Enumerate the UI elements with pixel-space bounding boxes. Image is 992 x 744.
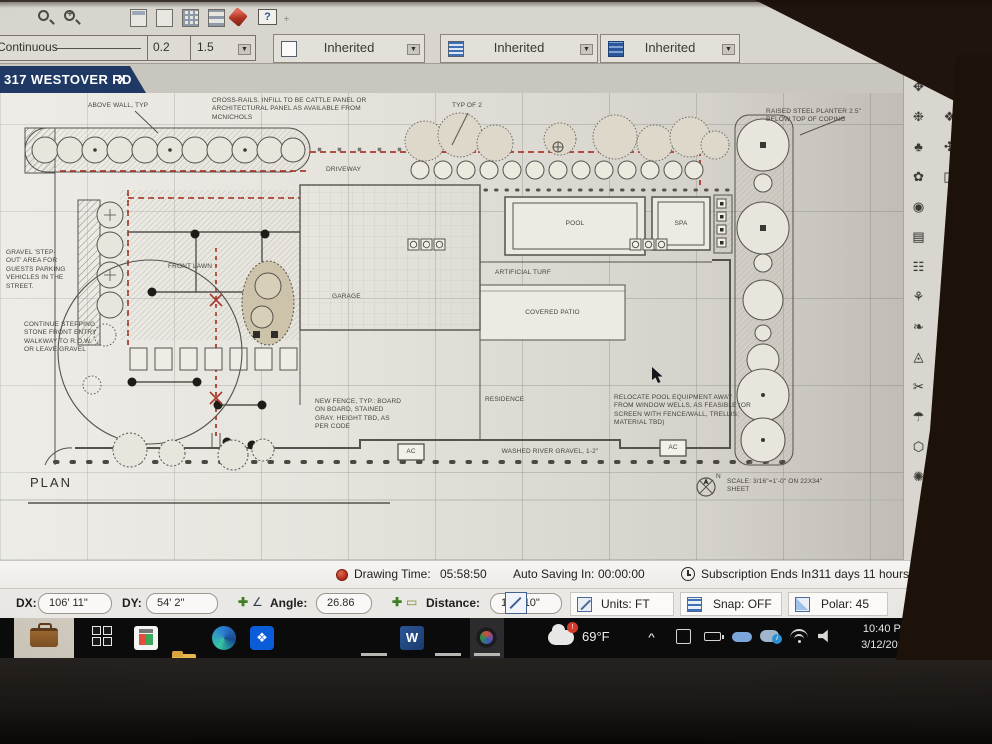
palette-tool-icon[interactable]: ▤ (908, 226, 930, 248)
palette-tool-icon[interactable]: ✜ (939, 466, 961, 488)
plan-note: CONTINUE STEPPING STONE FRONT ENTRY WALK… (24, 321, 98, 355)
drawing-canvas[interactable]: ABOVE WALL, TYP CROSS-RAILS. INFILL TO B… (0, 93, 905, 560)
wifi-icon[interactable] (790, 629, 808, 643)
plan-note: RELOCATE POOL EQUIPMENT AWAY FROM WINDOW… (614, 394, 752, 428)
layer-inherit-select[interactable]: Inherited ▼ (600, 34, 740, 63)
dy-label: DY: (122, 596, 142, 610)
palette-tool-icon[interactable]: ⬡ (908, 436, 930, 458)
scale-note: SCALE: 3/16"=1'-0" ON 22X34" SHEET (727, 478, 835, 495)
palette-tool-icon[interactable]: ✻ (939, 406, 961, 428)
palette-tool-icon[interactable]: ❉ (908, 106, 930, 128)
autosave-value: 00:00:00 (598, 567, 645, 581)
palette-tool-icon[interactable]: ✦ (939, 226, 961, 248)
plan-note: RAISED STEEL PLANTER 2.5" BELOW TOP OF C… (766, 108, 884, 125)
weather-cloud-icon: ! (548, 630, 574, 645)
menubar: ? ÷ (0, 0, 905, 32)
plan-note: TYP OF 2 (452, 102, 482, 110)
start-button[interactable] (92, 626, 116, 650)
cloud-sync-icon[interactable] (760, 630, 779, 642)
palette-tool-icon[interactable]: ⚘ (908, 286, 930, 308)
palette-tool-icon[interactable]: ▦ (939, 286, 961, 308)
laptop-photo: ? ÷ Continuous 0.2 1.5 ▼ Inherited ▼ Inh… (0, 0, 992, 744)
tab-title: 317 WESTOVER RD (4, 72, 132, 87)
tile-windows-icon[interactable] (130, 9, 147, 27)
palette-tool-icon[interactable]: ▥ (939, 76, 961, 98)
autosave-label: Auto Saving In: (513, 567, 594, 581)
drawing-tab[interactable]: 317 WESTOVER RD X (0, 66, 146, 93)
status-bar: Drawing Time: 05:58:50 Auto Saving In: 0… (0, 560, 992, 588)
linescale-value: 1.5 (197, 40, 214, 54)
layer-inherit-value: Inherited (645, 40, 696, 55)
linetype-sample (55, 48, 141, 49)
plan-label: AC (660, 444, 686, 452)
linescale-select[interactable]: 1.5 ▼ (190, 35, 256, 61)
palette-tool-icon[interactable]: ◉ (908, 196, 930, 218)
plan-label: ARTIFICIAL TURF (495, 269, 551, 277)
subscription-value: 311 days 11 hours 47 mins (812, 567, 954, 581)
polar-value: Polar: 45 (821, 597, 869, 611)
measure-tool-icon[interactable] (505, 592, 527, 614)
design-app-tile[interactable] (470, 618, 504, 658)
temperature-value: 69°F (582, 629, 610, 644)
units-icon (577, 597, 592, 612)
palette-tool-icon[interactable]: ♣ (908, 136, 930, 158)
coordinate-bar: DX: 106' 11" DY: 54' 2" ✚ ∠ Angle: 26.86… (0, 588, 992, 618)
snap-toggle[interactable]: Snap: OFF (680, 592, 782, 616)
palette-tool-icon[interactable]: ◫ (939, 166, 961, 188)
briefcase-icon (30, 628, 58, 647)
battery-icon[interactable] (704, 632, 721, 641)
laptop-bezel: hp (0, 658, 992, 744)
onedrive-icon[interactable] (732, 632, 752, 642)
linetype-value: Continuous (0, 40, 58, 54)
plan-label: POOL (505, 220, 645, 228)
tool-palette: ✥❉♣✿◉▤☷⚘❧◬✂☂⬡✺▥❖✣◫♠✦☘▦◔✸⬚✻▧✜ (903, 72, 965, 492)
zoom-out-icon[interactable] (38, 10, 49, 21)
palette-tool-icon[interactable]: ✥ (908, 76, 930, 98)
store-icon[interactable] (134, 626, 158, 650)
polar-icon (795, 597, 810, 612)
plan-note: CROSS-RAILS. INFILL TO BE CATTLE PANEL O… (212, 97, 390, 122)
distance-label: Distance: (426, 596, 480, 610)
plan-label: COVERED PATIO (480, 309, 625, 317)
plan-label: GARAGE (332, 293, 361, 301)
notification-count: 1 (946, 630, 952, 641)
palette-tool-icon[interactable]: ⬚ (939, 376, 961, 398)
zoom-in-icon[interactable] (64, 10, 75, 21)
taskbar-clock[interactable]: 10:40 PM 3/12/2024 (842, 622, 910, 654)
palette-tool-icon[interactable]: ✿ (908, 166, 930, 188)
units-toggle[interactable]: Units: FT (570, 592, 674, 616)
active-app-tile[interactable] (14, 618, 74, 658)
layout-rows-icon[interactable] (208, 9, 225, 27)
dx-label: DX: (16, 596, 37, 610)
plan-note: GRAVEL 'STEP-OUT' AREA FOR GUESTS PARKIN… (6, 249, 70, 291)
edge-browser-icon[interactable] (212, 626, 236, 650)
chevron-down-icon[interactable]: ▼ (238, 44, 251, 55)
polar-toggle[interactable]: Polar: 45 (788, 592, 888, 616)
plan-label: RESIDENCE (485, 396, 524, 404)
time-value: 10:40 PM (842, 622, 910, 638)
snap-value: Snap: OFF (713, 597, 772, 611)
lineweight-value: 0.2 (153, 40, 170, 54)
hatch-inherit-value: Inherited (494, 40, 545, 55)
palette-tool-icon[interactable]: ❖ (939, 106, 961, 128)
weather-widget[interactable]: ! 69°F (548, 626, 644, 652)
snap-grid-icon (687, 597, 702, 612)
palette-tool-icon[interactable]: ✣ (939, 136, 961, 158)
device-icon[interactable] (676, 629, 691, 644)
clock-icon (681, 567, 695, 581)
dy-field[interactable]: 54' 2" (146, 593, 218, 614)
dx-field[interactable]: 106' 11" (38, 593, 112, 614)
grid-view-icon[interactable] (182, 9, 199, 27)
properties-toolbar: Continuous 0.2 1.5 ▼ Inherited ▼ Inherit… (0, 32, 905, 64)
chevron-down-icon[interactable]: ▼ (407, 44, 420, 55)
drawing-time-label: Drawing Time: (354, 567, 431, 581)
angle-label: Angle: (270, 596, 307, 610)
palette-tool-icon[interactable]: ☘ (939, 256, 961, 278)
date-value: 3/12/2024 (842, 638, 910, 654)
notification-center-icon[interactable] (920, 626, 942, 644)
linetype-select[interactable]: Continuous (0, 35, 148, 61)
plan-label: AC (398, 448, 424, 456)
palette-tool-icon[interactable]: ☷ (908, 256, 930, 278)
eraser-icon[interactable] (228, 7, 248, 27)
palette-tool-icon[interactable]: ✂ (908, 376, 930, 398)
palette-tool-icon[interactable]: ☂ (908, 406, 930, 428)
palette-tool-icon[interactable]: ❧ (908, 316, 930, 338)
chevron-down-icon[interactable]: ▼ (722, 44, 735, 55)
palette-tool-icon[interactable]: ◔ (939, 316, 961, 338)
tab-strip: 317 WESTOVER RD X (0, 64, 905, 93)
drawing-time-value: 05:58:50 (440, 567, 487, 581)
add-angle-icon[interactable]: ✚ (238, 597, 249, 608)
angle-field[interactable]: 26.86 (316, 593, 372, 614)
add-distance-icon[interactable]: ✚ (392, 597, 403, 608)
color-inherit-select[interactable]: Inherited ▼ (273, 34, 425, 63)
tray-chevron-icon[interactable]: ^ (648, 631, 655, 642)
palette-tool-icon[interactable]: ▧ (939, 436, 961, 458)
recording-dot-icon (336, 569, 348, 581)
palette-tool-icon[interactable]: ♠ (939, 196, 961, 218)
units-value: Units: FT (601, 597, 650, 611)
volume-icon[interactable] (818, 629, 832, 643)
north-label: N (716, 473, 721, 481)
hatch-inherit-select[interactable]: Inherited ▼ (440, 34, 598, 63)
color-inherit-value: Inherited (324, 40, 375, 55)
taskbar: ❖ W ? ! 69°F ^ 10:40 PM 3/12/2024 1 (0, 618, 992, 658)
color-swatch-icon (281, 41, 297, 57)
lineweight-field[interactable]: 0.2 (147, 35, 191, 61)
palette-tool-icon[interactable]: ✸ (939, 346, 961, 368)
window-view-icon[interactable] (156, 9, 173, 27)
toolbar-overflow-icon[interactable]: ÷ (284, 14, 289, 24)
chevron-down-icon[interactable]: ▼ (580, 44, 593, 55)
word-icon[interactable]: W (400, 626, 424, 650)
subscription-label: Subscription Ends In: (701, 567, 814, 581)
angle-icon: ∠ (252, 595, 263, 609)
palette-tool-icon[interactable]: ◬ (908, 346, 930, 368)
swirl-app-icon (476, 627, 497, 648)
hatch-swatch-icon (448, 41, 464, 57)
plan-label: WASHED RIVER GRAVEL, 1-2" (440, 448, 660, 456)
plan-note: ABOVE WALL, TYP (88, 102, 148, 110)
dropbox-icon[interactable]: ❖ (250, 626, 274, 650)
plan-label: FRONT LAWN (168, 263, 212, 271)
plan-note: NEW FENCE, TYP.: BOARD ON BOARD, STAINED… (315, 398, 405, 432)
line-icon: ▭ (406, 595, 417, 609)
help-book-icon[interactable]: ? (258, 9, 277, 25)
tab-close-button[interactable]: X (118, 66, 127, 93)
plan-title: PLAN (30, 475, 72, 492)
palette-separator (908, 62, 978, 64)
layers-swatch-icon (608, 41, 624, 57)
plan-label: SPA (652, 220, 710, 228)
palette-tool-icon[interactable]: ✺ (908, 466, 930, 488)
plan-label: DRIVEWAY (326, 166, 361, 174)
